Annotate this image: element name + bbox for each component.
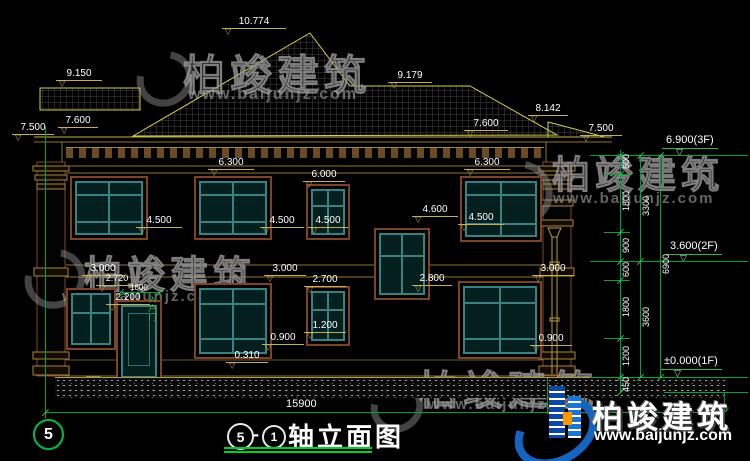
level-value: 7.600 [473, 118, 498, 129]
title-underline [224, 447, 372, 449]
chain-dim: 600 [622, 262, 631, 277]
window-1f-right [463, 286, 537, 354]
chain-dim: 3600 [642, 307, 651, 327]
chain-boundary-line [604, 338, 630, 339]
level-value: 6.000 [311, 169, 336, 180]
level-marker: 0.900 [530, 333, 572, 346]
title-underline [224, 451, 372, 453]
level-value: 0.900 [538, 333, 563, 344]
level-value: 2.800 [419, 273, 444, 284]
level-triangle-icon [674, 369, 681, 377]
level-value: 7.600 [65, 115, 90, 126]
chain-dim: 1200 [622, 346, 631, 366]
level-value: 1.200 [312, 320, 337, 331]
chain-dim: 1800 [622, 297, 631, 317]
level-value: 3.600(2F) [670, 240, 718, 252]
window-2f-2 [199, 181, 267, 235]
level-marker: 10.774 [222, 16, 286, 29]
title-bubble-start: 5 [227, 423, 254, 450]
level-value: 0.310 [234, 350, 259, 361]
title-bubble-end: 1 [262, 425, 286, 449]
level-triangle-icon [109, 304, 115, 311]
level-triangle-icon [307, 286, 313, 293]
door-dim-line [120, 292, 160, 293]
level-value: 3.000 [272, 263, 297, 274]
level-triangle-icon [85, 275, 91, 282]
level-marker: 2.700 [304, 274, 346, 287]
level-marker: 9.179 [388, 70, 432, 83]
level-marker: 7.600 [464, 118, 508, 131]
level-triangle-icon [139, 227, 145, 234]
axis-grid-line [45, 126, 46, 418]
level-marker: 6.300 [208, 157, 254, 170]
axis-bubble-5: 5 [33, 419, 64, 450]
door-tag: 入户门 [148, 295, 157, 322]
level-triangle-icon [467, 169, 473, 176]
level-value: 6.300 [218, 157, 243, 168]
level-value: 3.000 [540, 263, 565, 274]
window-2f-1 [75, 181, 143, 235]
chain-dim: 450 [622, 377, 631, 392]
window-2f-3 [465, 181, 537, 237]
level-marker: 1.200 [304, 320, 346, 333]
level-value: 6.300 [474, 157, 499, 168]
window-1f-small [311, 291, 345, 341]
level-line [590, 377, 748, 378]
level-triangle-icon [307, 332, 313, 339]
door-width-dim: 1800 [130, 283, 148, 292]
chain-dim: 3300 [642, 196, 651, 216]
level-marker: 2.800 [412, 273, 452, 286]
level-triangle-icon [533, 345, 539, 352]
watermark-url: www.baijunjz.com [553, 190, 714, 207]
level-marker: 8.142 [528, 103, 568, 116]
level-triangle-icon [15, 134, 21, 141]
level-line [590, 155, 748, 156]
level-value: 7.500 [588, 123, 613, 134]
level-value: 2.720 [106, 273, 129, 283]
level-value: 9.150 [66, 68, 91, 79]
level-value: 8.142 [535, 103, 560, 114]
level-marker: 4.600 [412, 204, 458, 217]
level-marker: 0.310 [226, 350, 268, 363]
level-triangle-icon [229, 362, 235, 369]
level-triangle-icon [415, 216, 421, 223]
level-value: 4.500 [468, 212, 493, 223]
level-value: 6.900(3F) [666, 134, 714, 146]
level-triangle-icon [461, 224, 467, 231]
overall-width-dim: 15900 [286, 398, 317, 410]
level-value: 9.179 [397, 70, 422, 81]
level-triangle-icon [535, 275, 541, 282]
level-triangle-icon [225, 28, 231, 35]
level-triangle-icon [61, 127, 67, 134]
chain-boundary-line [604, 232, 630, 233]
level-marker: 2.200 [106, 292, 150, 305]
chain-line [640, 155, 641, 377]
level-value: ±0.000(1F) [664, 355, 718, 367]
level-marker: 4.500 [458, 212, 504, 225]
level-value: 2.700 [312, 274, 337, 285]
level-value: 7.500 [20, 122, 45, 133]
brand-logo-accent-icon [563, 412, 572, 425]
level-marker: 4.500 [260, 215, 304, 228]
level-triangle-icon [531, 115, 537, 122]
chain-dim: 900 [622, 238, 631, 253]
chain-dim: 600 [622, 154, 631, 169]
level-triangle-icon [267, 275, 273, 282]
chain-dim: 6900 [662, 254, 671, 274]
level-marker: 6.300 [464, 157, 510, 170]
level-value: 4.500 [269, 215, 294, 226]
chain-boundary-line [604, 174, 630, 175]
level-marker: 7.500 [12, 122, 54, 135]
level-value: 4.500 [146, 215, 171, 226]
level-marker: 0.900 [262, 332, 304, 345]
level-triangle-icon [467, 130, 473, 137]
chain-boundary-line [604, 280, 630, 281]
level-marker: 6.000 [303, 169, 345, 182]
window-1f-center [199, 288, 267, 354]
watermark-url: www.baijunjz.com [188, 86, 358, 104]
chain-dim: 1800 [622, 191, 631, 211]
floor-level-label: ±0.000(1F) [660, 355, 722, 370]
level-marker: 4.500 [308, 215, 348, 228]
level-triangle-icon [391, 82, 397, 89]
level-triangle-icon [311, 227, 317, 234]
level-marker: 7.600 [58, 115, 98, 128]
level-value: 4.600 [422, 204, 447, 215]
level-value: 4.500 [315, 215, 340, 226]
brand-url: www.baijunjz.com [594, 427, 732, 445]
level-marker: 7.500 [580, 123, 622, 136]
window-1f-left [71, 293, 111, 345]
level-triangle-icon [415, 285, 421, 292]
level-marker: 3.000 [264, 263, 306, 276]
floor-level-label: 6.900(3F) [662, 134, 718, 149]
level-marker: 4.500 [136, 215, 182, 228]
level-triangle-icon [211, 169, 217, 176]
floor-level-label: 3.600(2F) [666, 240, 722, 255]
level-triangle-icon [306, 181, 312, 188]
level-triangle-icon [263, 227, 269, 234]
level-marker: 3.000 [532, 263, 574, 276]
level-value: 10.774 [239, 16, 270, 27]
level-marker: 9.150 [56, 68, 102, 81]
level-triangle-icon [583, 135, 589, 142]
level-value: 0.900 [270, 332, 295, 343]
title-dash: - [253, 424, 262, 445]
elevation-drawing-canvas: 柏竣建筑 www.baijunjz.com 柏竣建筑 www.baijunjz.… [0, 0, 750, 461]
level-triangle-icon [59, 80, 65, 87]
level-triangle-icon [99, 285, 105, 292]
